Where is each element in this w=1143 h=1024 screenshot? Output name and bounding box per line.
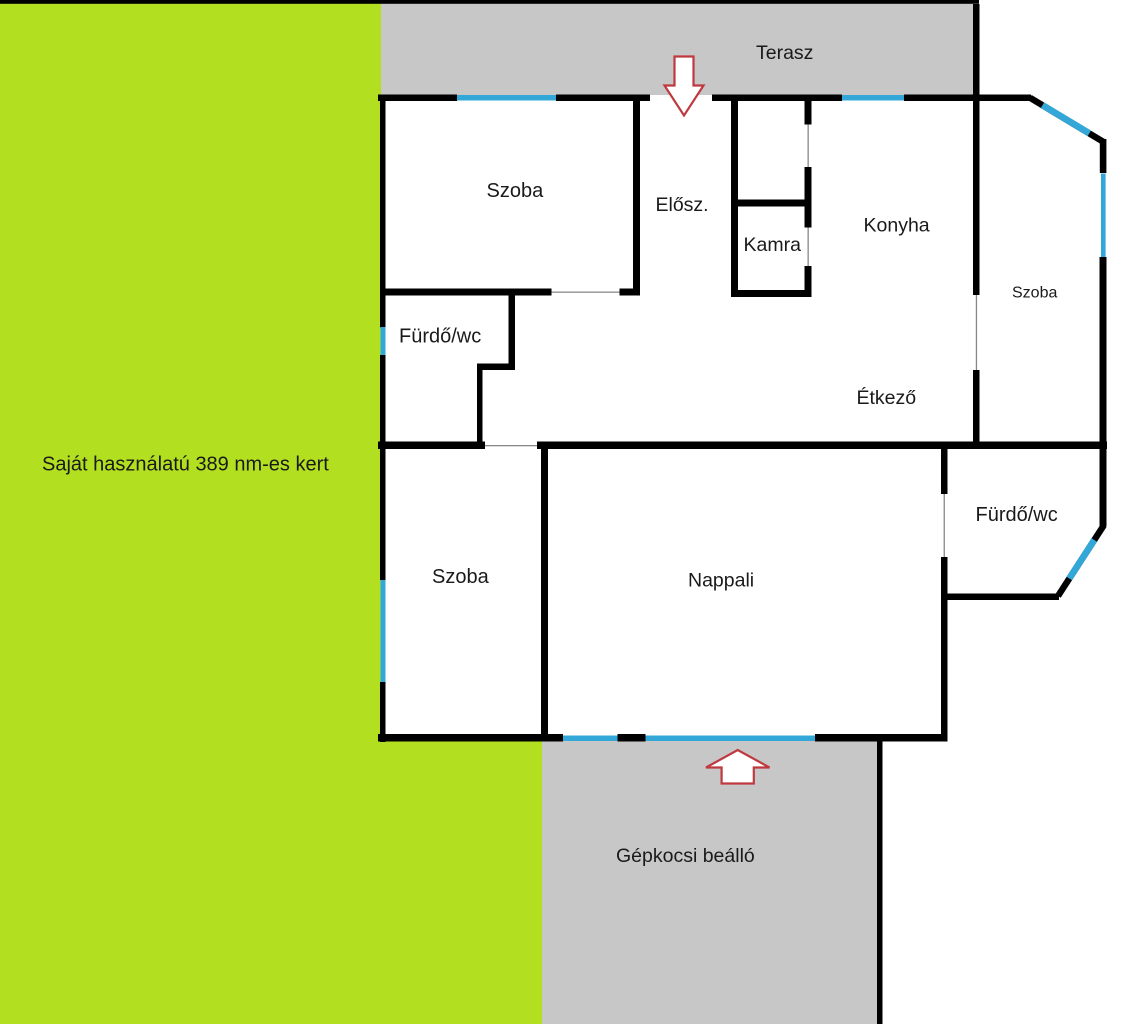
svg-text:Kamra: Kamra bbox=[744, 234, 802, 256]
svg-text:Fürdő/wc: Fürdő/wc bbox=[399, 326, 481, 348]
svg-text:Saját használatú 389 nm-es ker: Saját használatú 389 nm-es kert bbox=[42, 454, 329, 476]
svg-text:Szoba: Szoba bbox=[1012, 285, 1057, 302]
svg-text:Gépkocsi beálló: Gépkocsi beálló bbox=[616, 845, 755, 867]
svg-text:Terasz: Terasz bbox=[756, 42, 813, 64]
svg-text:Nappali: Nappali bbox=[688, 570, 754, 592]
svg-text:Szoba: Szoba bbox=[432, 566, 490, 588]
svg-text:Fürdő/wc: Fürdő/wc bbox=[976, 504, 1058, 526]
svg-text:Étkező: Étkező bbox=[857, 386, 917, 409]
svg-text:Konyha: Konyha bbox=[864, 215, 930, 237]
svg-text:Szoba: Szoba bbox=[487, 180, 545, 202]
svg-text:Elősz.: Elősz. bbox=[656, 194, 709, 216]
